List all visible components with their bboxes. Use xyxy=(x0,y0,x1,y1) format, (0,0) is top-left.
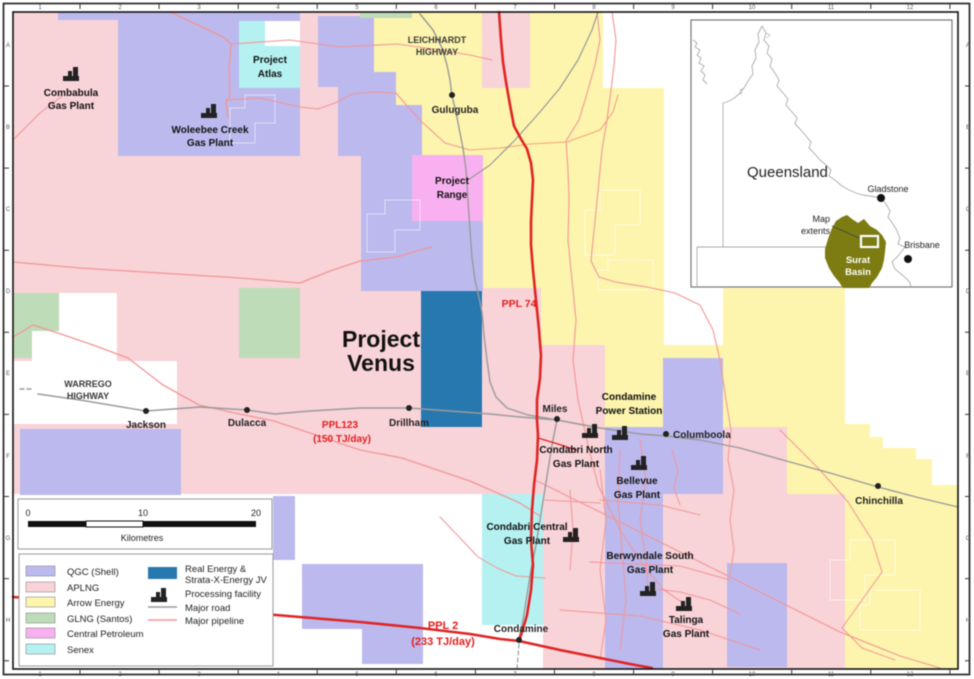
svg-text:(150 TJ/day): (150 TJ/day) xyxy=(313,434,371,445)
svg-text:C: C xyxy=(966,207,971,213)
svg-text:B: B xyxy=(6,125,10,131)
svg-text:Gas Plant: Gas Plant xyxy=(614,490,661,501)
svg-text:Miles: Miles xyxy=(542,404,567,415)
svg-text:Bellevue: Bellevue xyxy=(616,476,658,487)
svg-text:Gas Plant: Gas Plant xyxy=(663,629,710,640)
svg-text:F: F xyxy=(6,454,10,460)
svg-text:Talinga: Talinga xyxy=(669,615,704,626)
svg-text:WARREGO: WARREGO xyxy=(64,379,112,389)
svg-text:Senex: Senex xyxy=(67,645,94,656)
svg-text:F: F xyxy=(966,454,970,460)
svg-text:HIGHWAY: HIGHWAY xyxy=(67,391,109,401)
svg-text:12: 12 xyxy=(907,672,914,678)
svg-text:D: D xyxy=(966,289,971,295)
svg-text:Gas Plant: Gas Plant xyxy=(504,536,551,547)
svg-text:Condamine: Condamine xyxy=(494,624,549,635)
svg-text:G: G xyxy=(966,536,971,542)
svg-text:Atlas: Atlas xyxy=(258,69,283,80)
svg-text:PPL 74: PPL 74 xyxy=(502,298,537,310)
svg-text:Range: Range xyxy=(437,190,468,201)
svg-text:Columboola: Columboola xyxy=(673,430,731,441)
svg-text:extents: extents xyxy=(801,226,831,236)
svg-text:Major road: Major road xyxy=(185,603,230,614)
svg-text:Guluguba: Guluguba xyxy=(432,105,479,116)
svg-text:PPL 2: PPL 2 xyxy=(428,620,458,632)
svg-text:E: E xyxy=(966,371,970,377)
svg-text:Drillham: Drillham xyxy=(389,418,429,429)
svg-text:Condamine: Condamine xyxy=(602,392,657,403)
svg-text:Central Petroleum: Central Petroleum xyxy=(67,629,144,640)
svg-text:C: C xyxy=(6,207,11,213)
svg-text:Queensland: Queensland xyxy=(747,164,828,181)
svg-text:Gas Plant: Gas Plant xyxy=(553,459,600,470)
svg-text:HIGHWAY: HIGHWAY xyxy=(416,47,458,57)
svg-text:PPL123: PPL123 xyxy=(322,420,359,431)
svg-text:QGC (Shell): QGC (Shell) xyxy=(67,567,119,578)
svg-text:11: 11 xyxy=(828,5,835,11)
svg-text:(233 TJ/day): (233 TJ/day) xyxy=(411,636,475,648)
svg-text:Processing facility: Processing facility xyxy=(185,589,261,600)
svg-text:Combabula: Combabula xyxy=(44,88,99,99)
svg-text:Project: Project xyxy=(342,326,420,352)
svg-text:Jackson: Jackson xyxy=(126,420,166,431)
svg-text:A: A xyxy=(6,43,10,49)
svg-text:GLNG (Santos): GLNG (Santos) xyxy=(67,614,132,625)
svg-text:0: 0 xyxy=(25,508,30,518)
svg-text:E: E xyxy=(6,371,10,377)
svg-text:Power Station: Power Station xyxy=(596,406,663,417)
svg-text:Project: Project xyxy=(253,55,288,66)
svg-text:11: 11 xyxy=(828,672,835,678)
svg-text:Gas Plant: Gas Plant xyxy=(627,565,674,576)
svg-text:Gas Plant: Gas Plant xyxy=(48,101,95,112)
svg-text:Major pipeline: Major pipeline xyxy=(185,616,244,627)
svg-text:D: D xyxy=(6,289,11,295)
svg-text:12: 12 xyxy=(907,5,914,11)
svg-text:Woleebee Creek: Woleebee Creek xyxy=(171,125,249,136)
svg-text:Surat: Surat xyxy=(846,255,871,266)
svg-text:Map: Map xyxy=(812,214,830,224)
svg-text:APLNG: APLNG xyxy=(67,583,99,594)
svg-text:Strata-X-Energy JV: Strata-X-Energy JV xyxy=(185,575,267,586)
svg-text:Berwyndale South: Berwyndale South xyxy=(606,551,693,562)
svg-text:Real Energy &: Real Energy & xyxy=(185,564,247,575)
svg-text:Venus: Venus xyxy=(347,350,415,376)
svg-text:G: G xyxy=(6,536,11,542)
svg-text:Gas Plant: Gas Plant xyxy=(187,138,234,149)
svg-text:B: B xyxy=(966,125,970,131)
svg-text:Condabri North: Condabri North xyxy=(539,445,612,456)
svg-text:H: H xyxy=(6,618,10,624)
svg-text:20: 20 xyxy=(251,508,261,518)
svg-text:Kilometres: Kilometres xyxy=(121,533,164,543)
svg-text:10: 10 xyxy=(749,5,756,11)
svg-text:Brisbane: Brisbane xyxy=(904,240,940,250)
svg-text:10: 10 xyxy=(749,672,756,678)
svg-text:10: 10 xyxy=(138,508,148,518)
svg-text:Arrow Energy: Arrow Energy xyxy=(67,598,125,609)
svg-text:A: A xyxy=(966,43,970,49)
svg-text:Basin: Basin xyxy=(845,267,871,278)
svg-text:Dulacca: Dulacca xyxy=(228,418,267,429)
svg-text:Condabri Central: Condabri Central xyxy=(486,522,567,533)
svg-text:Chinchilla: Chinchilla xyxy=(855,496,903,507)
svg-text:LEICHHARDT: LEICHHARDT xyxy=(408,35,467,45)
svg-text:Project: Project xyxy=(435,176,470,187)
svg-text:Gladstone: Gladstone xyxy=(867,184,908,194)
svg-text:H: H xyxy=(966,618,970,624)
